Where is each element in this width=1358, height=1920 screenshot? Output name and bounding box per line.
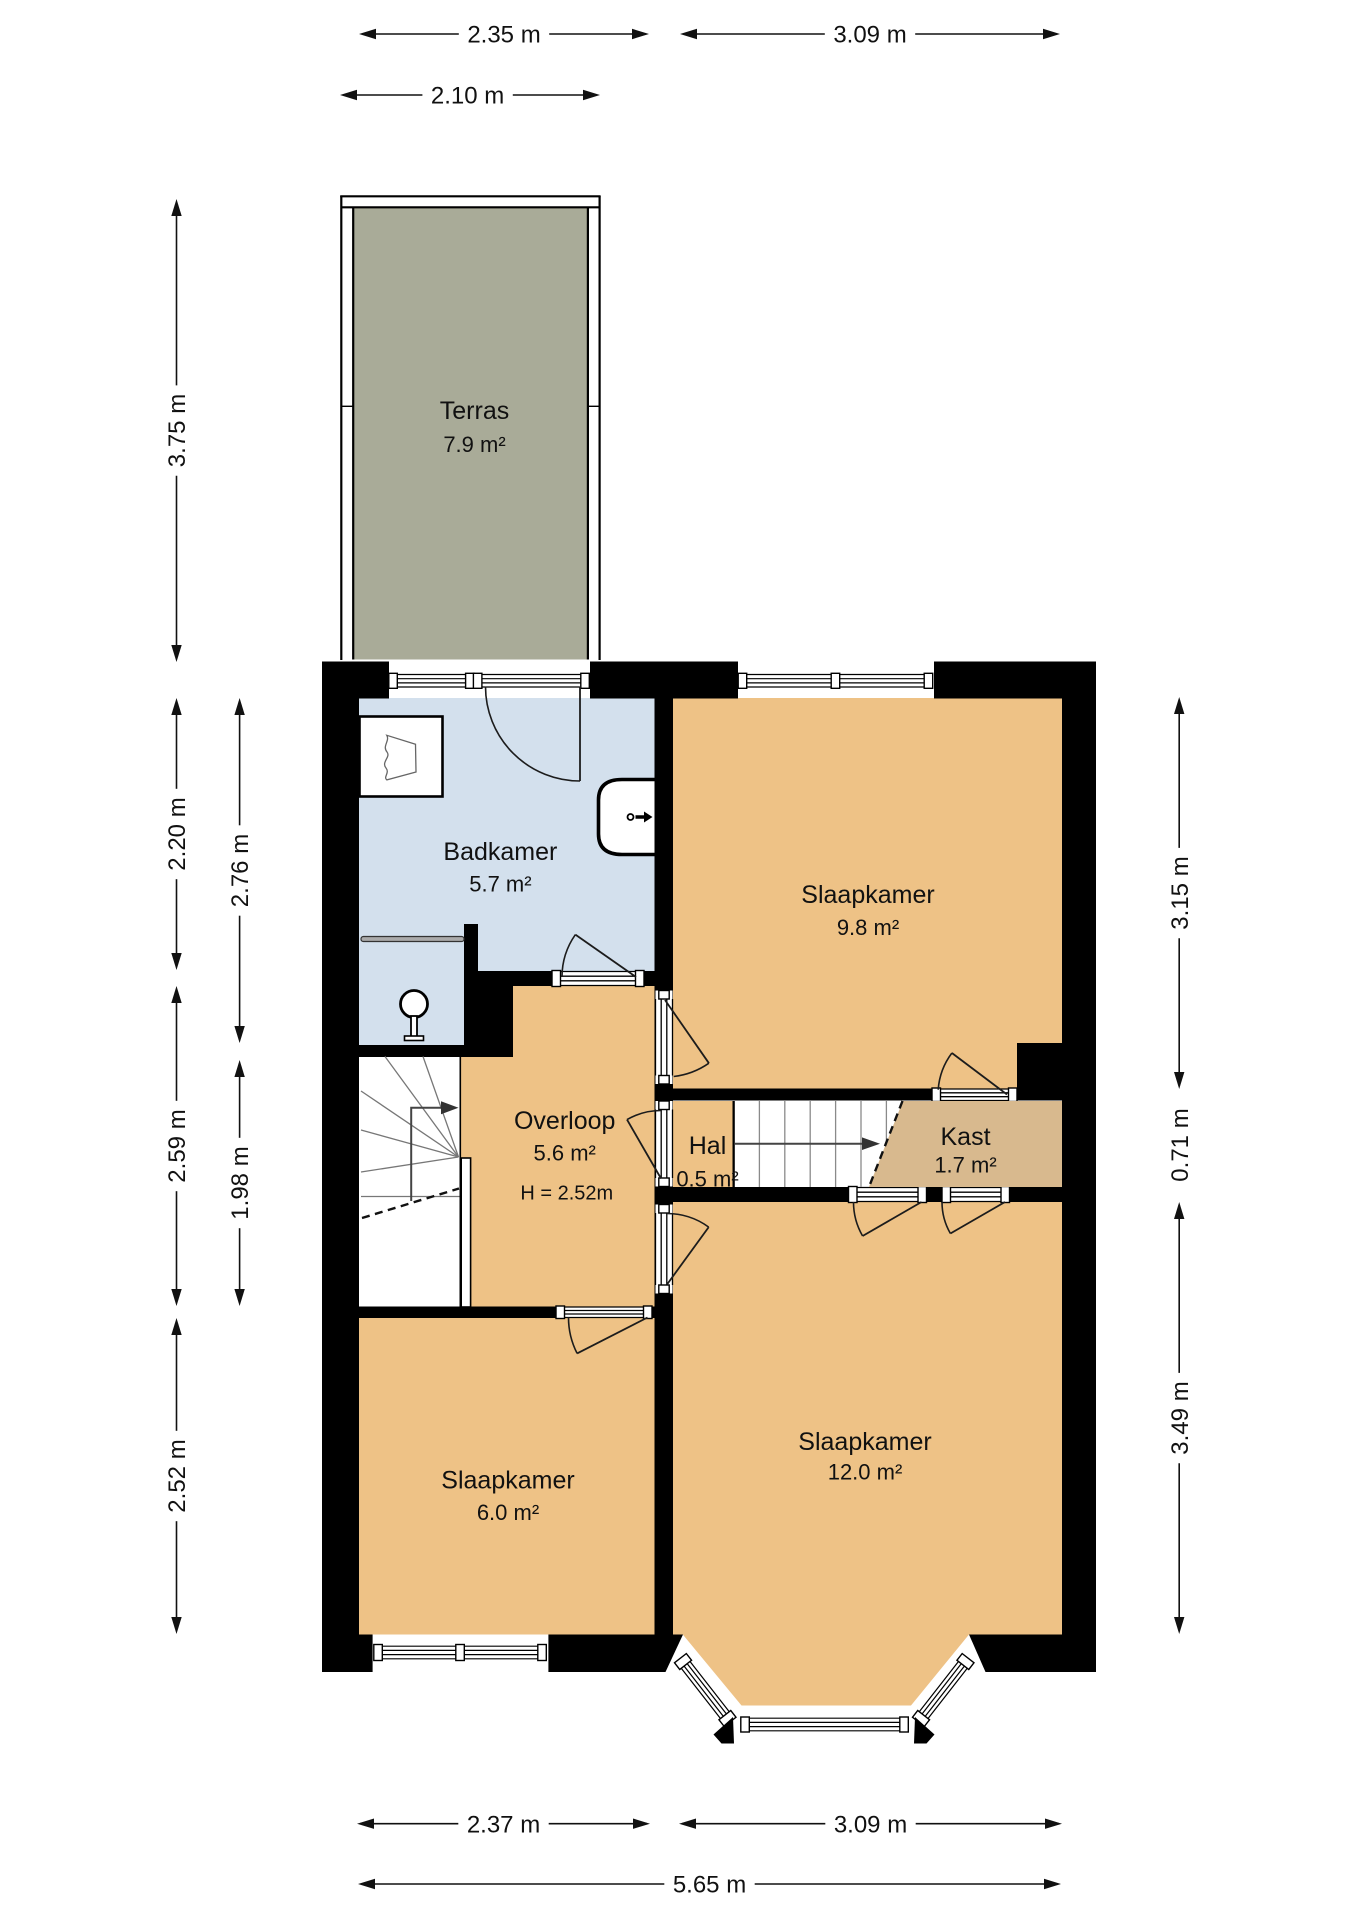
- svg-text:9.8 m²: 9.8 m²: [837, 915, 899, 940]
- svg-text:Slaapkamer: Slaapkamer: [441, 1467, 574, 1495]
- svg-text:5.6 m²: 5.6 m²: [534, 1141, 596, 1166]
- svg-text:Overloop: Overloop: [514, 1107, 615, 1135]
- svg-text:3.09 m: 3.09 m: [834, 1811, 907, 1838]
- svg-text:5.65 m: 5.65 m: [673, 1872, 746, 1899]
- svg-text:1.98 m: 1.98 m: [227, 1146, 254, 1219]
- svg-text:2.20 m: 2.20 m: [164, 797, 191, 870]
- svg-text:Slaapkamer: Slaapkamer: [801, 881, 934, 909]
- svg-text:0.71 m: 0.71 m: [1167, 1108, 1194, 1181]
- svg-text:Badkamer: Badkamer: [443, 838, 557, 866]
- svg-text:1.7 m²: 1.7 m²: [934, 1153, 996, 1178]
- svg-text:3.49 m: 3.49 m: [1167, 1381, 1194, 1454]
- svg-text:2.37 m: 2.37 m: [467, 1811, 540, 1838]
- svg-text:H = 2.52m: H = 2.52m: [520, 1183, 613, 1205]
- svg-text:Terras: Terras: [440, 397, 509, 425]
- svg-text:0.5 m²: 0.5 m²: [676, 1167, 738, 1192]
- svg-text:5.7 m²: 5.7 m²: [469, 871, 531, 896]
- svg-text:2.52 m: 2.52 m: [164, 1439, 191, 1512]
- svg-text:2.76 m: 2.76 m: [227, 834, 254, 907]
- svg-text:3.75 m: 3.75 m: [164, 394, 191, 467]
- svg-text:Hal: Hal: [689, 1132, 727, 1160]
- svg-text:2.10 m: 2.10 m: [431, 83, 504, 110]
- svg-text:Slaapkamer: Slaapkamer: [798, 1428, 931, 1456]
- svg-text:3.15 m: 3.15 m: [1167, 856, 1194, 929]
- svg-text:6.0 m²: 6.0 m²: [477, 1500, 539, 1525]
- svg-text:2.35 m: 2.35 m: [467, 22, 540, 49]
- svg-text:12.0 m²: 12.0 m²: [828, 1460, 903, 1485]
- svg-text:3.09 m: 3.09 m: [833, 22, 906, 49]
- svg-text:7.9 m²: 7.9 m²: [443, 432, 505, 457]
- svg-text:Kast: Kast: [940, 1123, 990, 1151]
- svg-text:2.59 m: 2.59 m: [164, 1109, 191, 1182]
